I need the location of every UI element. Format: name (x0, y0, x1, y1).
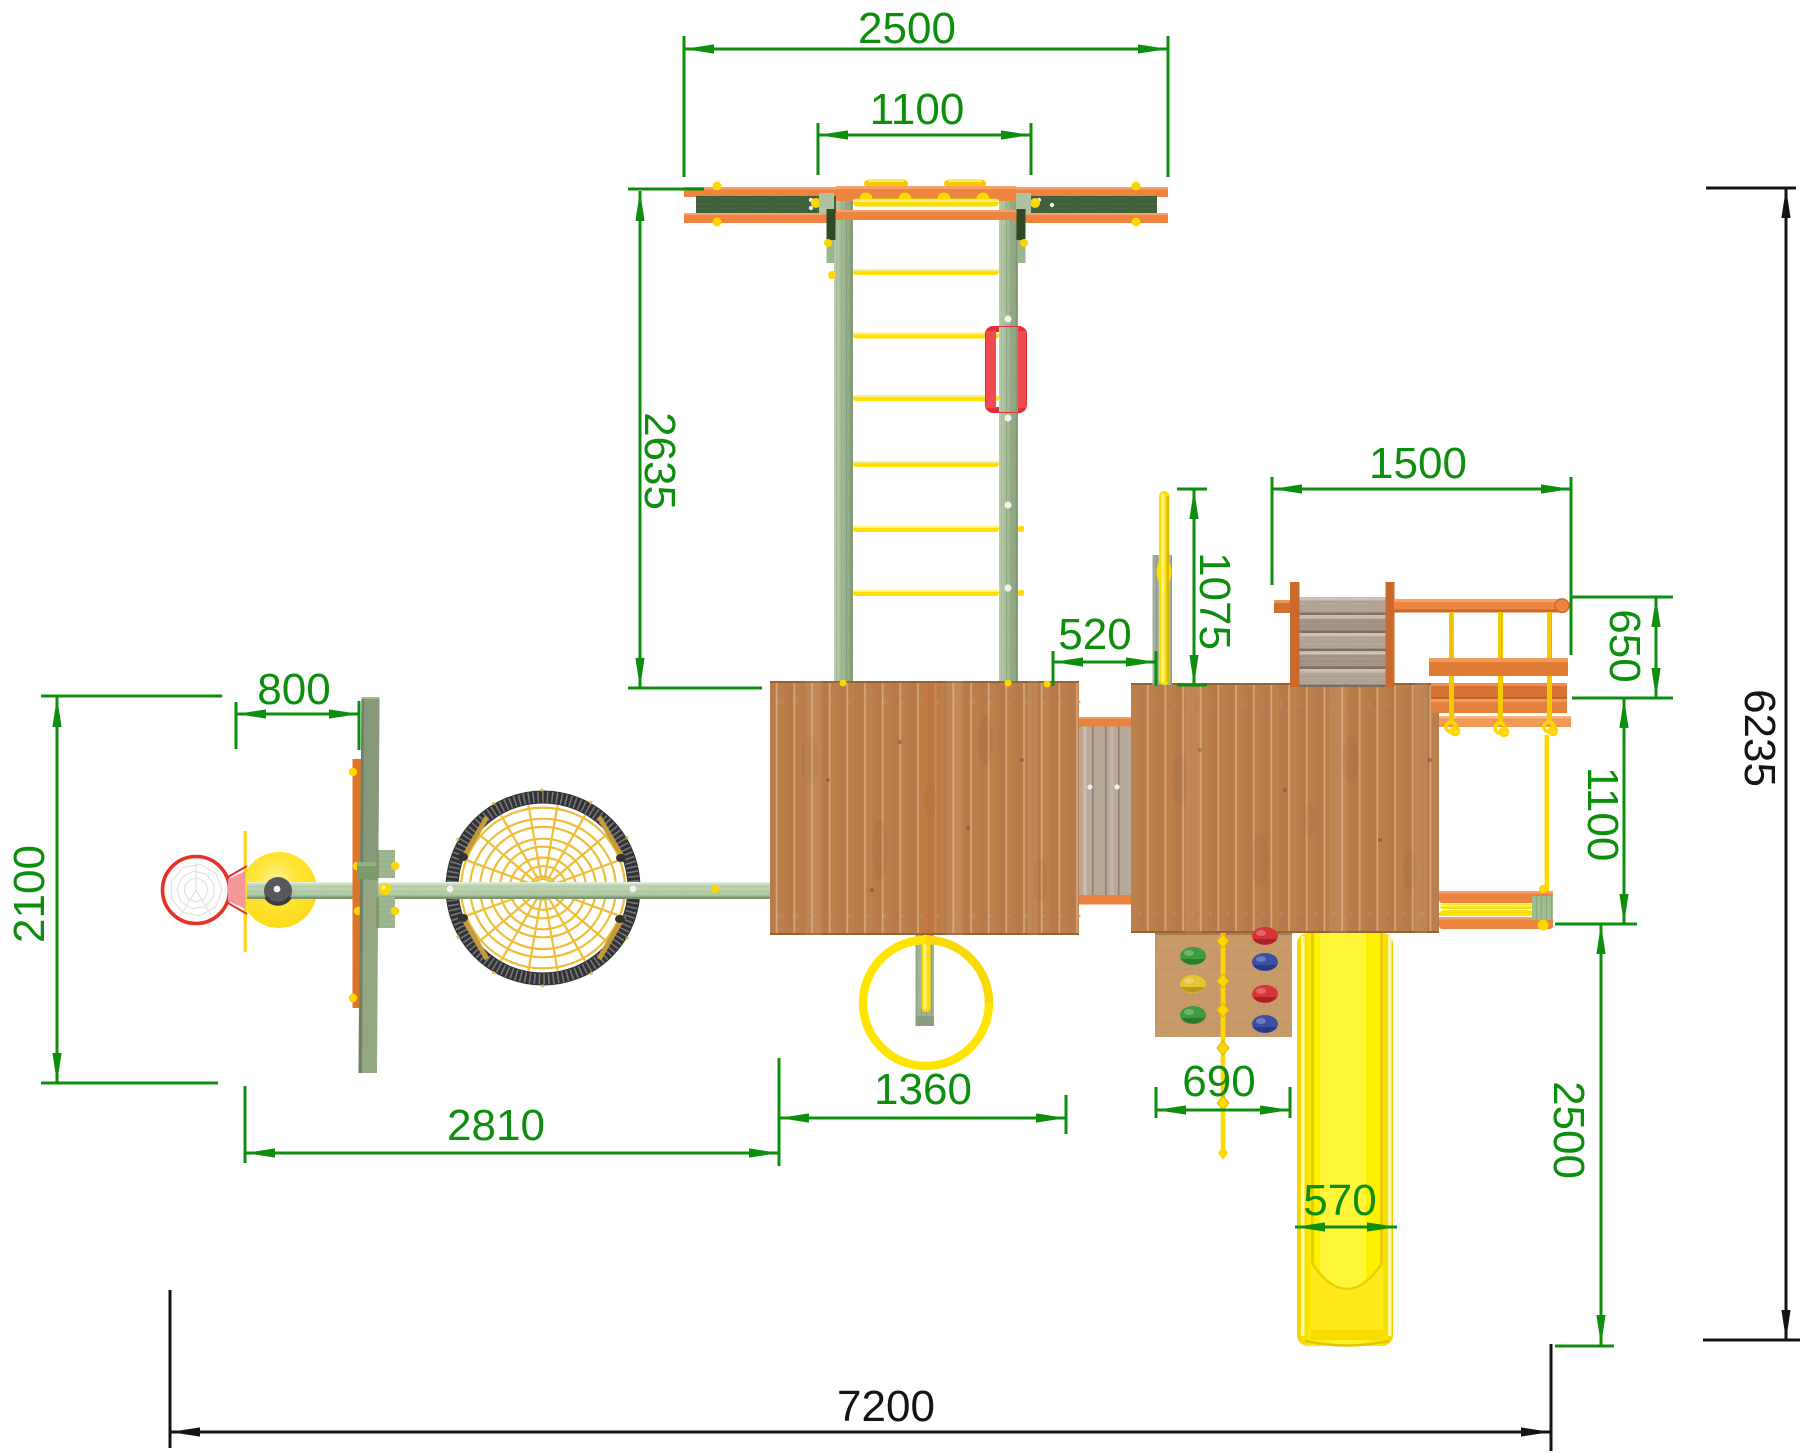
svg-text:520: 520 (1058, 610, 1131, 659)
svg-text:1075: 1075 (1190, 552, 1239, 650)
svg-text:6235: 6235 (1735, 689, 1784, 787)
svg-text:650: 650 (1600, 609, 1649, 682)
svg-text:2500: 2500 (858, 4, 956, 53)
svg-text:1360: 1360 (874, 1065, 972, 1114)
svg-text:1500: 1500 (1369, 439, 1467, 488)
svg-text:2100: 2100 (5, 845, 54, 943)
svg-text:2810: 2810 (447, 1101, 545, 1150)
svg-text:2635: 2635 (635, 412, 684, 510)
svg-text:1100: 1100 (870, 85, 965, 134)
svg-text:690: 690 (1182, 1057, 1255, 1106)
svg-text:1100: 1100 (1578, 767, 1627, 862)
svg-text:800: 800 (257, 665, 330, 714)
svg-text:2500: 2500 (1544, 1081, 1593, 1179)
svg-text:7200: 7200 (837, 1382, 935, 1431)
svg-text:570: 570 (1303, 1176, 1376, 1225)
